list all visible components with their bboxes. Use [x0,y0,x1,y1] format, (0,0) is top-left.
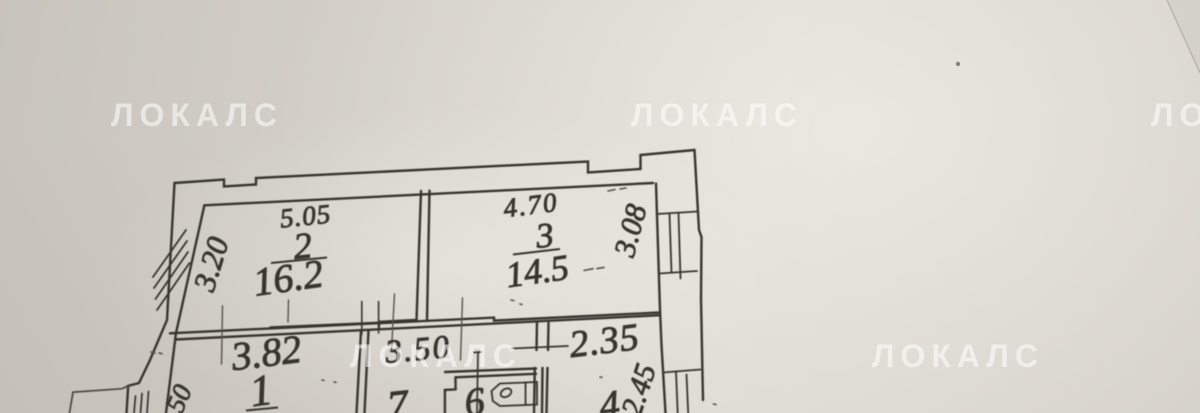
svg-text:2.45: 2.45 [615,360,663,413]
svg-text:2.35: 2.35 [567,316,642,366]
svg-text:50: 50 [160,380,198,413]
svg-text:14.5: 14.5 [503,247,571,295]
svg-text:6: 6 [462,378,487,413]
svg-text:4: 4 [597,381,622,413]
svg-text:7: 7 [385,382,413,413]
svg-text:16.2: 16.2 [250,250,326,304]
svg-text:3.08: 3.08 [608,201,654,261]
svg-text:3.20: 3.20 [186,232,236,296]
